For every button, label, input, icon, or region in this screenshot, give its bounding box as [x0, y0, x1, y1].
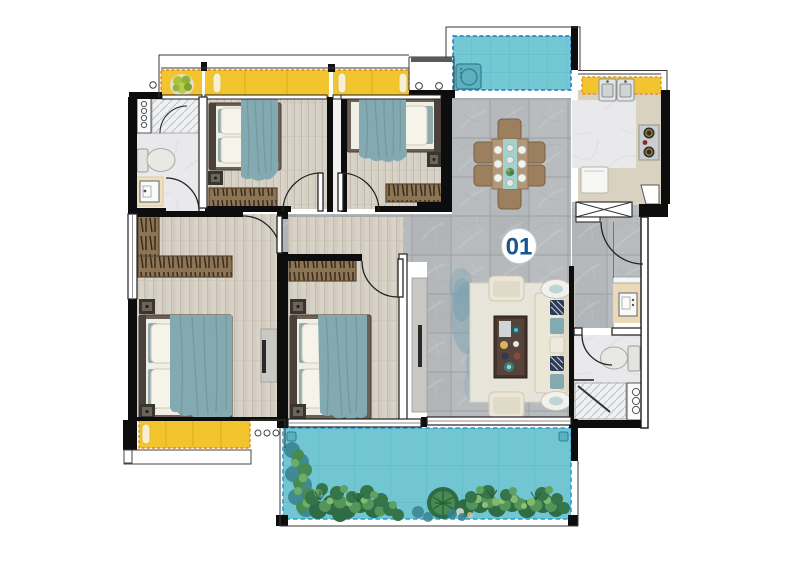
svg-text:01: 01 — [506, 234, 533, 261]
